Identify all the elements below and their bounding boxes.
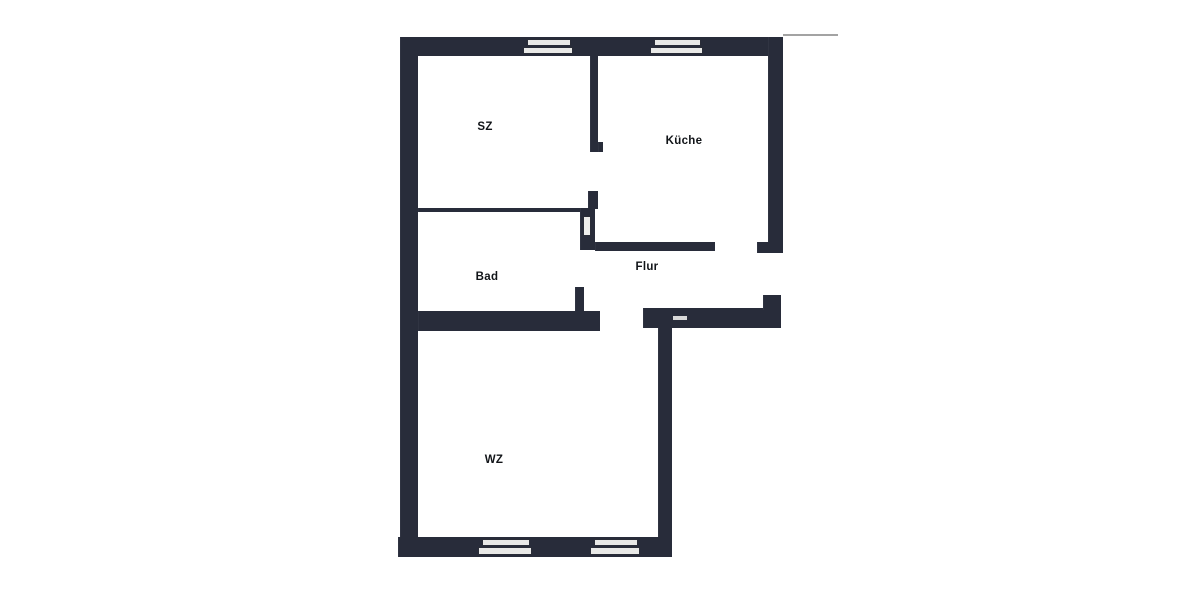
scan-artifact-line: [783, 34, 838, 36]
room-label-wz: WZ: [485, 454, 503, 466]
window-pane: [478, 547, 532, 555]
entrance-threshold: [673, 316, 687, 320]
bad-door-stub: [575, 287, 584, 313]
entrance-wall: [643, 308, 781, 328]
wz-right-wall: [658, 328, 672, 557]
window-pane: [527, 39, 571, 46]
room-label-sz: SZ: [477, 121, 492, 133]
window-top-right-icon: [650, 39, 703, 54]
room-label-flur: Flur: [636, 261, 659, 273]
window-pane: [523, 47, 573, 55]
bad-bottom-wall: [418, 311, 600, 331]
outer-top-wall: [400, 37, 783, 56]
entrance-wall-step: [763, 295, 781, 310]
page: SZKücheBadFlurWZ: [0, 0, 1200, 600]
window-pane: [654, 39, 701, 46]
window-bottom-right-icon: [590, 539, 640, 555]
flur-top-wall: [595, 242, 715, 251]
window-pane: [594, 539, 638, 546]
kueche-right-wall: [768, 37, 783, 253]
bad-top-wall: [418, 208, 582, 212]
window-pane: [650, 47, 703, 55]
window-top-left-icon: [523, 39, 573, 54]
outer-left-wall: [400, 37, 418, 545]
window-pane: [590, 547, 640, 555]
floorplan: SZKücheBadFlurWZ: [0, 0, 1200, 600]
sz-kueche-wall-stub: [588, 191, 598, 209]
bad-door-leaf-icon: [583, 216, 591, 236]
sz-kueche-wall-foot: [598, 142, 603, 152]
room-label-bad: Bad: [476, 271, 499, 283]
window-pane: [482, 539, 530, 546]
sz-kueche-wall: [590, 56, 598, 152]
room-label-kueche: Küche: [666, 135, 703, 147]
window-bottom-left-icon: [478, 539, 532, 555]
kueche-right-wall-flange: [757, 242, 783, 253]
